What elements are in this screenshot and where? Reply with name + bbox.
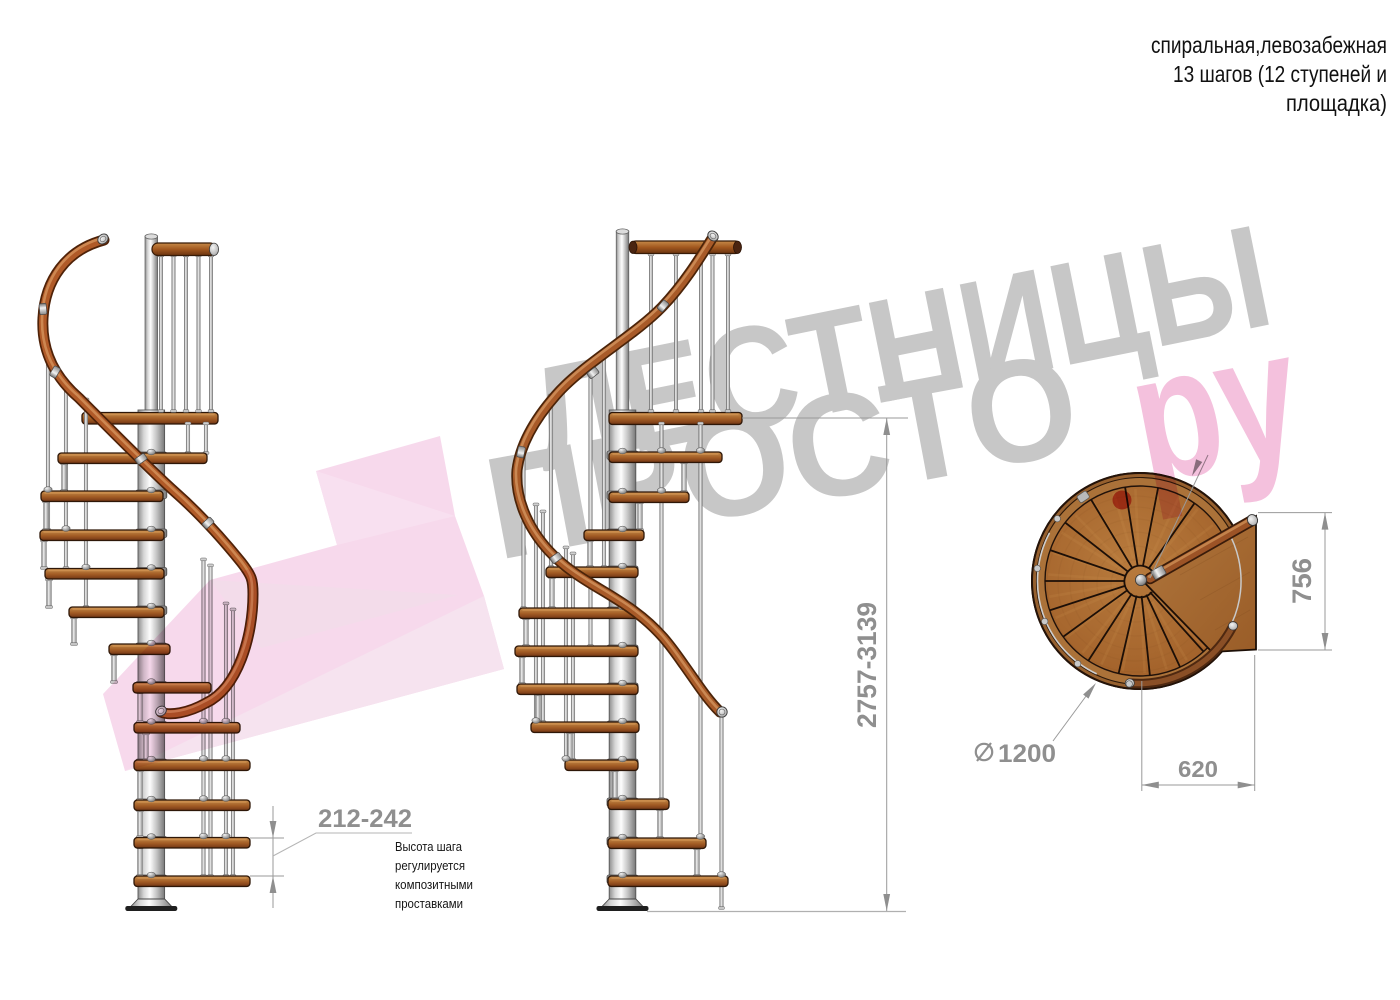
- svg-text:проставками: проставками: [395, 896, 463, 911]
- svg-text:2757-3139: 2757-3139: [852, 602, 882, 728]
- svg-text:212-242: 212-242: [318, 805, 412, 833]
- svg-text:620: 620: [1178, 756, 1218, 782]
- svg-text:Высота шага: Высота шага: [395, 839, 463, 854]
- svg-text:композитными: композитными: [395, 877, 473, 892]
- svg-text:площадка): площадка): [1286, 90, 1387, 116]
- svg-text:регулируется: регулируется: [395, 858, 465, 873]
- svg-text:1200: 1200: [998, 740, 1056, 768]
- svg-text:13 шагов (12 ступеней и: 13 шагов (12 ступеней и: [1173, 61, 1387, 87]
- svg-text:756: 756: [1287, 558, 1317, 604]
- svg-text:спиральная,левозабежная: спиральная,левозабежная: [1151, 32, 1387, 58]
